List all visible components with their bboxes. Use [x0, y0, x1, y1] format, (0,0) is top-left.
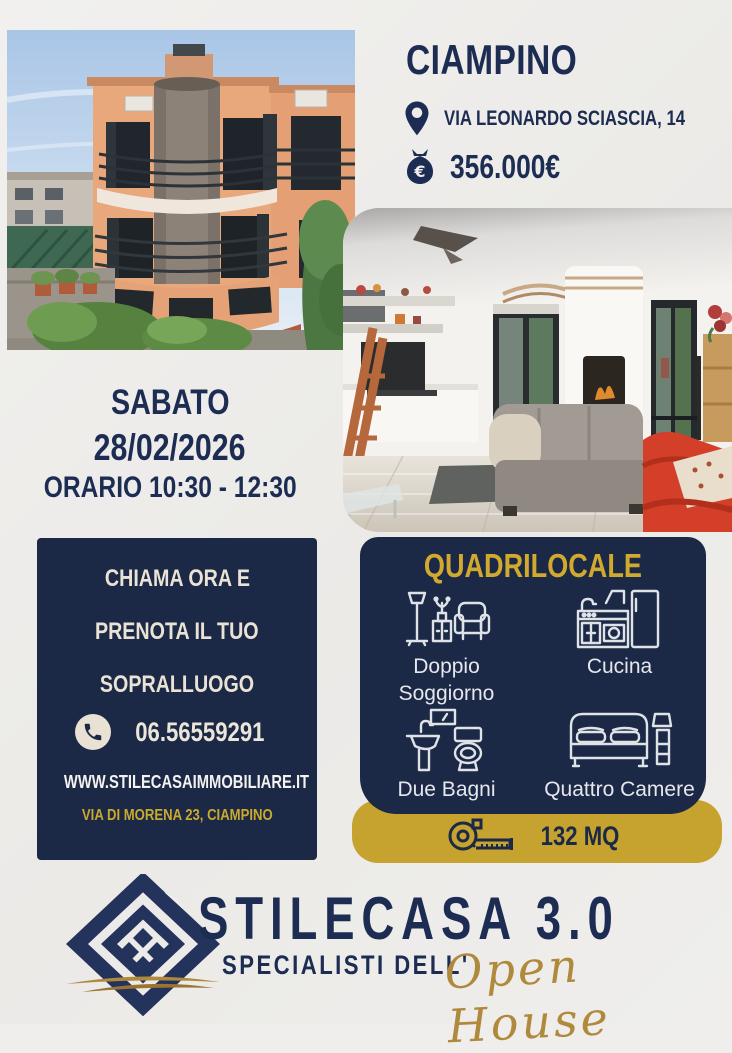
features-grid: Doppio Soggiorno — [360, 589, 706, 803]
bedroom-icon — [565, 708, 675, 774]
office-address: VIA DI MORENA 23, CIAMPINO — [37, 807, 317, 825]
livingroom-illustration — [343, 208, 732, 532]
contact-line-2: PRENOTA IL TUO — [37, 618, 317, 646]
event-date: 28/02/2026 — [8, 425, 332, 470]
contact-line-1: CHIAMA ORA E — [37, 565, 317, 593]
address-label: VIA LEONARDO SCIASCIA, 14 — [444, 107, 732, 131]
area-row: 132 MQ — [446, 811, 628, 861]
feature-living: Doppio Soggiorno — [360, 589, 533, 708]
price-row: € 356.000€ — [400, 146, 588, 188]
feature-label: Cucina — [587, 653, 652, 680]
event-block: SABATO 28/02/2026 ORARIO 10:30 - 12:30 — [8, 382, 332, 506]
price-label: 356.000€ — [450, 148, 588, 186]
city-title-text: CIAMPINO — [406, 36, 577, 84]
location-pin-icon — [402, 100, 432, 138]
address-row: VIA LEONARDO SCIASCIA, 14 — [402, 100, 732, 138]
feature-bedrooms: Quattro Camere — [533, 708, 706, 803]
feature-label: Doppio Soggiorno — [382, 653, 512, 708]
money-bag-icon: € — [400, 146, 440, 188]
phone-icon — [75, 714, 111, 750]
contact-box: CHIAMA ORA E PRENOTA IL TUO SOPRALLUOGO … — [37, 538, 317, 860]
website: WWW.STILECASAIMMOBILIARE.IT — [37, 772, 317, 793]
exterior-photo — [7, 30, 355, 350]
feature-label: Quattro Camere — [544, 776, 695, 803]
event-time: ORARIO 10:30 - 12:30 — [8, 470, 332, 507]
bathroom-icon — [399, 708, 495, 774]
kitchen-icon — [572, 589, 668, 651]
interior-photo — [343, 208, 732, 532]
tape-measure-icon — [446, 817, 520, 855]
features-title: QUADRILOCALE — [360, 547, 706, 585]
feature-kitchen: Cucina — [533, 589, 706, 708]
open-house-script: Open House — [443, 931, 732, 1053]
event-day: SABATO — [8, 382, 332, 425]
phone-row: 06.56559291 — [37, 714, 317, 750]
house-illustration — [7, 30, 355, 350]
flyer: CIAMPINO VIA LEONARDO SCIASCIA, 14 € 356… — [0, 0, 732, 1024]
living-room-icon — [399, 589, 495, 651]
area-label: 132 MQ — [532, 821, 628, 852]
contact-line-3: SOPRALLUOGO — [37, 671, 317, 699]
city-title: CIAMPINO — [406, 36, 620, 84]
feature-bath: Due Bagni — [360, 708, 533, 803]
features-box: QUADRILOCALE — [360, 537, 706, 814]
feature-label: Due Bagni — [397, 776, 495, 803]
svg-text:€: € — [413, 162, 425, 181]
phone-number: 06.56559291 — [121, 717, 279, 748]
